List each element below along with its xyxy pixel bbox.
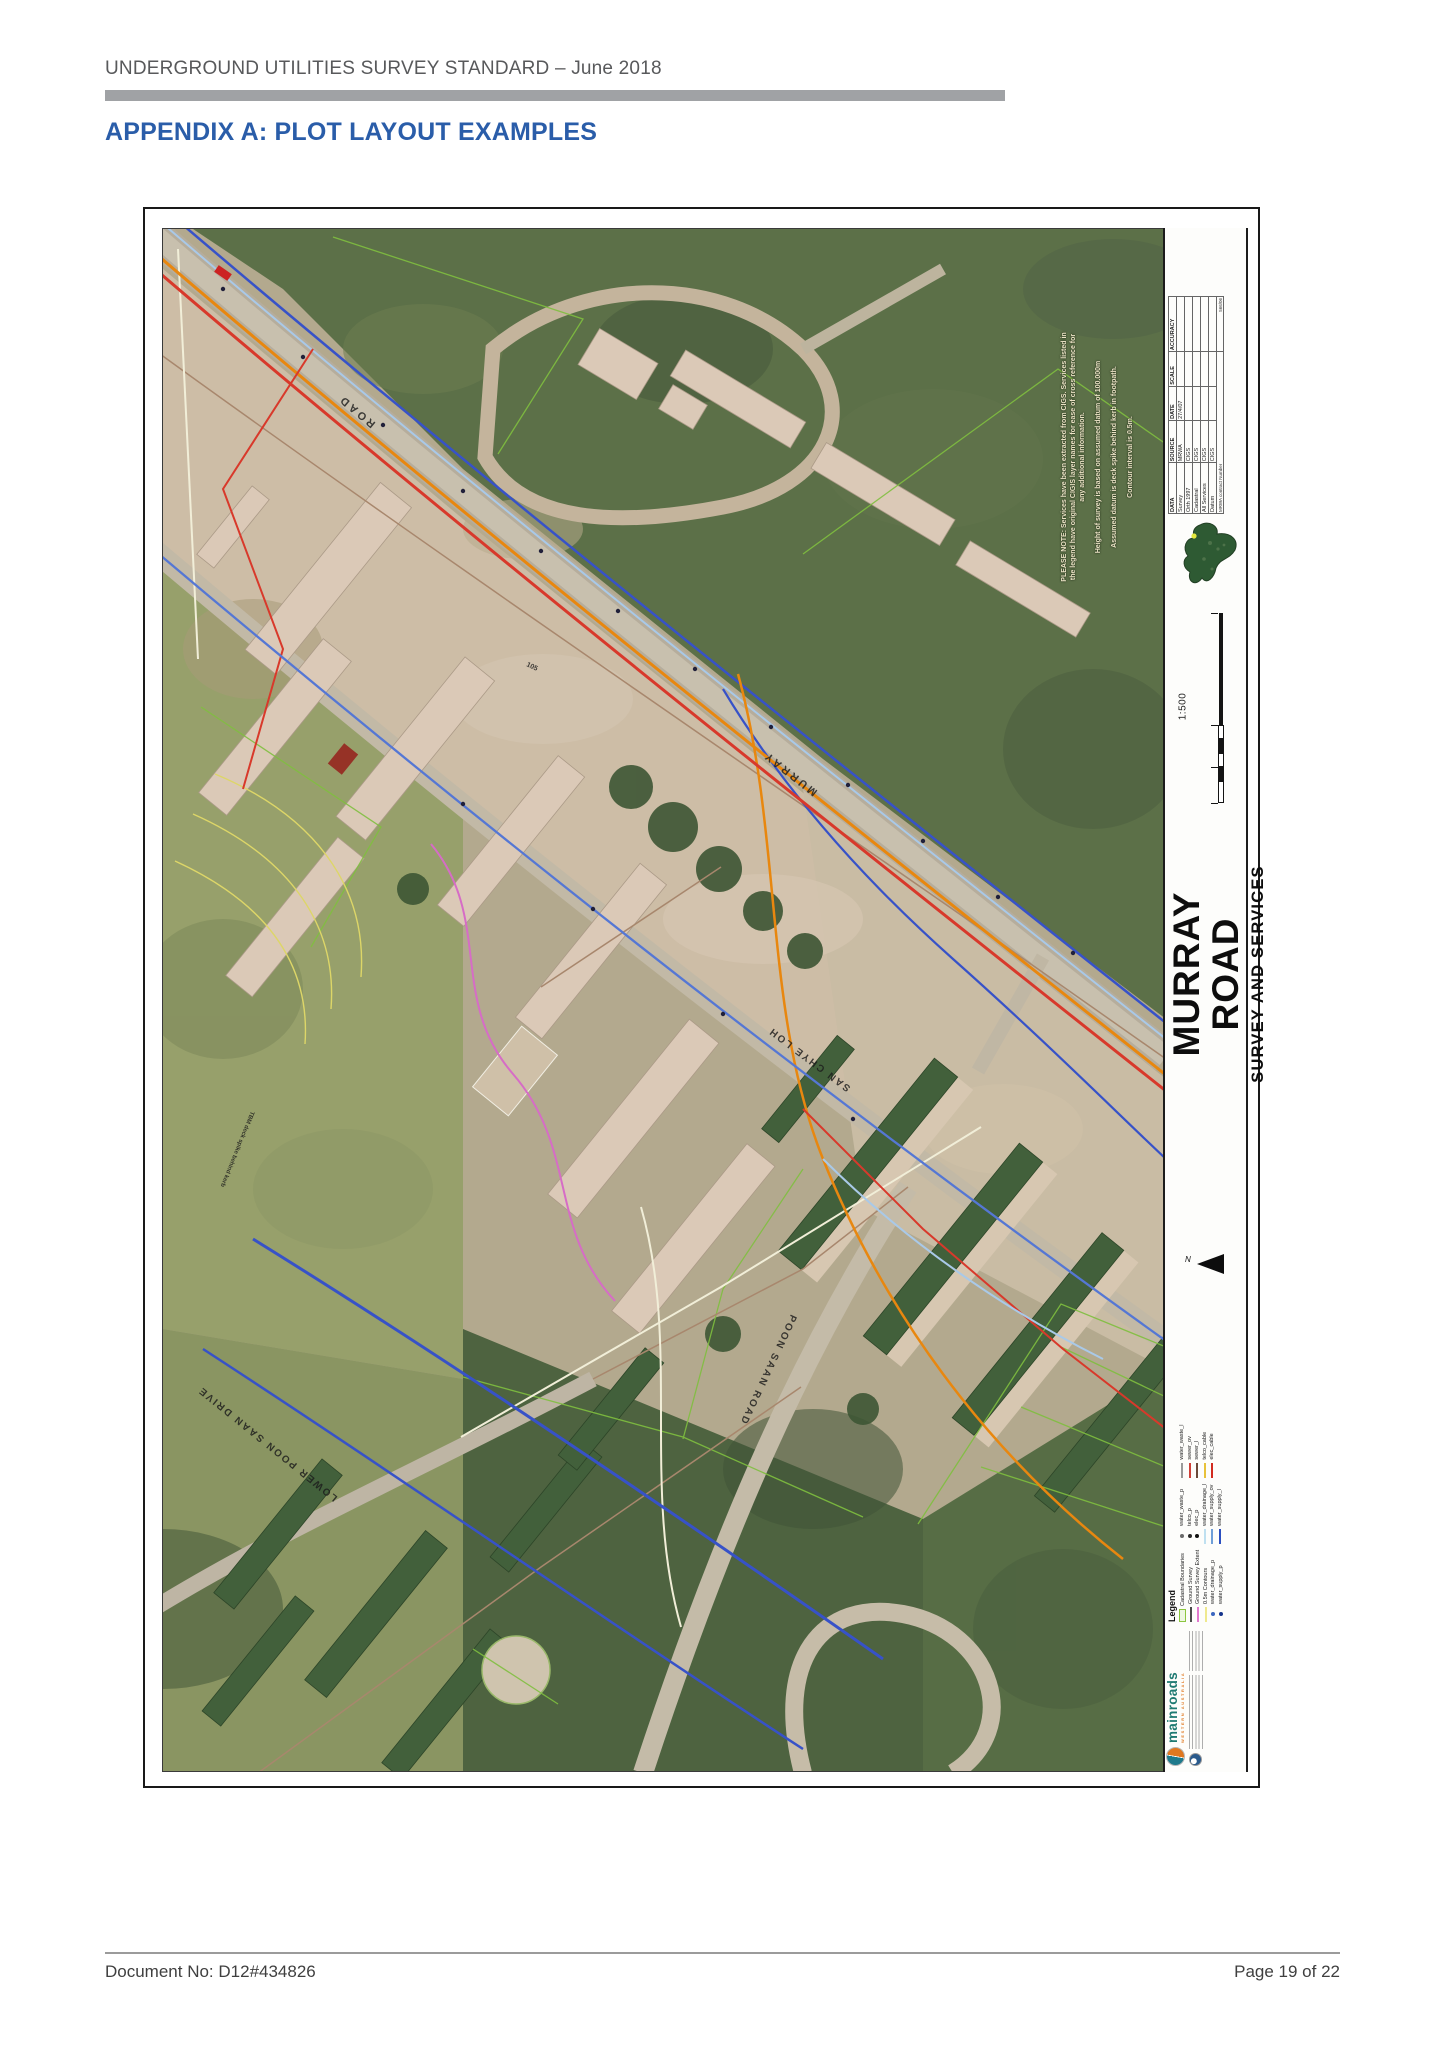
info-table-cell: Survey	[1177, 463, 1185, 514]
legend-title: Legend	[1167, 1360, 1177, 1622]
info-table-footnote-row: MRWA contract Number566/06	[1217, 297, 1224, 514]
legend-swatch-dot-icon	[1219, 1613, 1223, 1617]
info-table-header: SCALE	[1169, 352, 1177, 387]
info-table-cell	[1177, 297, 1185, 352]
legend-item-label: Cadastral Boundaries	[1180, 1553, 1186, 1606]
appendix-title: APPENDIX A: PLOT LAYOUT EXAMPLES	[105, 118, 597, 147]
info-table-cell	[1201, 352, 1209, 387]
document-header: UNDERGROUND UTILITIES SURVEY STANDARD – …	[105, 58, 662, 80]
legend-item: water_supply_ov	[1209, 1484, 1215, 1544]
legend-item-label: Ground Survey	[1188, 1567, 1194, 1604]
copyright-fine-print	[1189, 1675, 1204, 1749]
legend-swatch-dot-icon	[1188, 1534, 1192, 1538]
legend-item-label: Ground Survey Extent	[1195, 1550, 1201, 1604]
legend-swatch-dot-icon	[1180, 1534, 1184, 1538]
north-arrow: N	[1183, 1251, 1233, 1281]
legend-swatch-line-icon	[1219, 1529, 1221, 1544]
info-table-cell: Datum	[1209, 463, 1217, 514]
info-table-cell: CIGS	[1193, 420, 1201, 462]
sheet-title: MURRAY ROAD	[1168, 824, 1246, 1124]
legend-item-label: 0.5m Contours	[1203, 1568, 1209, 1604]
map-note: Height of survey is based on assumed dat…	[1094, 327, 1103, 587]
map-notes: PLEASE NOTE: Services have been extracte…	[1060, 327, 1165, 587]
legend-item: Ground Survey	[1188, 1550, 1194, 1622]
legend-swatch-dot-icon	[1195, 1534, 1199, 1538]
info-table-cell: MRWA	[1177, 420, 1185, 462]
info-table-footnote: MRWA contract Number	[1217, 352, 1224, 514]
info-table-header: SOURCE	[1169, 420, 1177, 462]
info-table-header: DATA	[1169, 463, 1177, 514]
legend-item-label: elec_p	[1194, 1510, 1200, 1526]
info-table-cell	[1185, 297, 1193, 352]
info-table-cell	[1185, 352, 1193, 387]
legend-item-label: water_waste_p	[1179, 1489, 1185, 1526]
legend-swatch-line-icon	[1197, 1607, 1199, 1622]
info-table-cell: All Services	[1201, 463, 1209, 514]
info-table: DATASOURCEDATESCALEACCURACY SurveyMRWA27…	[1168, 296, 1224, 514]
legend-item: water_supply_p	[1218, 1550, 1224, 1622]
document-page: { "page": { "header": "UNDERGROUND UTILI…	[0, 0, 1446, 2048]
legend: Legend Cadastral BoundariesGround Survey…	[1166, 1360, 1248, 1624]
legend-item: elec_cable	[1209, 1425, 1215, 1478]
legend-swatch-line-icon	[1189, 1463, 1191, 1478]
mainroads-subtitle: WESTERN AUSTRALIA	[1180, 1672, 1185, 1743]
info-table-cell	[1201, 297, 1209, 352]
legend-item: water_drainage_p	[1210, 1550, 1216, 1622]
legend-swatch-line-icon	[1204, 1529, 1206, 1544]
legend-item: 0.5m Contours	[1203, 1550, 1209, 1622]
info-table-header: DATE	[1169, 386, 1177, 420]
mainroads-logo-icon	[1166, 1747, 1185, 1766]
info-table-cell	[1185, 386, 1193, 420]
info-table-cell: Cadastral	[1193, 463, 1201, 514]
legend-item-label: telco_cable	[1202, 1432, 1208, 1460]
legend-item-label: telco_p	[1187, 1508, 1193, 1526]
document-number: Document No: D12#434826	[105, 1962, 316, 1982]
info-table-cell	[1201, 386, 1209, 420]
legend-swatch-line-icon	[1204, 1463, 1206, 1478]
legend-item-label: water_supply_ov	[1209, 1485, 1215, 1526]
north-arrow-icon	[1197, 1254, 1224, 1274]
legend-item: Cadastral Boundaries	[1179, 1550, 1186, 1622]
legend-column: Cadastral BoundariesGround SurveyGround …	[1179, 1550, 1224, 1622]
legend-swatch-line-icon	[1211, 1529, 1213, 1544]
legend-item-label: water_drainage_p	[1210, 1560, 1216, 1604]
info-table-block: DATASOURCEDATESCALEACCURACY SurveyMRWA27…	[1168, 296, 1244, 514]
info-table-cell	[1209, 386, 1217, 420]
mainroads-wordmark: mainroads	[1166, 1672, 1180, 1743]
legend-column: water_waste_lsewer_ovsewer_ltelco_cablee…	[1179, 1425, 1224, 1478]
footer-rule	[105, 1952, 1340, 1954]
legend-item-label: water_supply_l	[1217, 1489, 1223, 1526]
logos-block: mainroads WESTERN AUSTRALIA	[1166, 1630, 1248, 1766]
legend-swatch-line-icon	[1196, 1463, 1198, 1478]
scale-bar: 1:500	[1183, 605, 1235, 819]
scale-label: 1:500	[1177, 693, 1188, 721]
info-table-row: DatumCIGS	[1209, 297, 1217, 514]
legend-item-label: sewer_ov	[1187, 1436, 1193, 1460]
info-table-header: ACCURACY	[1169, 297, 1177, 352]
legend-swatch-line-icon	[1190, 1607, 1192, 1622]
locality-map-icon	[1180, 519, 1240, 595]
header-rule	[105, 90, 1005, 101]
legend-swatch-line-icon	[1181, 1463, 1183, 1478]
legend-item: Ground Survey Extent	[1195, 1550, 1201, 1622]
info-table-cell: 27/4/07	[1177, 386, 1185, 420]
legend-swatch-line-icon	[1205, 1607, 1207, 1622]
map-sheet: ROADMURRAYSAN CHYE LOHPOON SAAN ROADLOWE…	[143, 207, 1260, 1788]
legend-item: telco_p	[1187, 1484, 1193, 1544]
info-table-row: CadastralCIGS	[1193, 297, 1201, 514]
legend-item: elec_p	[1194, 1484, 1200, 1544]
map-note: Contour interval is 0.5m.	[1126, 327, 1135, 587]
government-logo-icon	[1189, 1753, 1202, 1766]
page-number: Page 19 of 22	[1234, 1962, 1340, 1982]
legend-item: water_supply_l	[1217, 1484, 1223, 1544]
legend-item: water_drainage_l	[1202, 1484, 1208, 1544]
info-table-cell	[1193, 352, 1201, 387]
copyright-fine-print	[1189, 1631, 1204, 1671]
legend-item: water_waste_l	[1179, 1425, 1185, 1478]
sheet-subtitle: SURVEY AND SERVICES	[1249, 824, 1268, 1124]
legend-item-label: water_waste_l	[1179, 1425, 1185, 1460]
map-note: PLEASE NOTE: Services have been extracte…	[1060, 327, 1087, 587]
legend-swatch-dot-icon	[1211, 1613, 1215, 1617]
sheet-title-block: MURRAY ROAD SURVEY AND SERVICES	[1168, 824, 1246, 1124]
legend-item-label: water_supply_p	[1218, 1565, 1224, 1604]
legend-swatch-box-icon	[1179, 1609, 1186, 1622]
legend-item-label: elec_cable	[1209, 1433, 1215, 1459]
legend-item: telco_cable	[1202, 1425, 1208, 1478]
info-table-footnote-value: 566/06	[1217, 297, 1224, 352]
info-table-cell	[1209, 352, 1217, 387]
north-label: N	[1185, 1255, 1191, 1264]
info-table-cell: CIGS	[1209, 420, 1217, 462]
map-note: Assumed datum is deck spike behind kerb …	[1110, 327, 1119, 587]
map-photo: ROADMURRAYSAN CHYE LOHPOON SAAN ROADLOWE…	[162, 228, 1165, 1772]
info-table-row: SurveyMRWA27/4/07	[1177, 297, 1185, 514]
legend-item-label: water_drainage_l	[1202, 1484, 1208, 1526]
info-table-cell	[1193, 386, 1201, 420]
info-table-cell: Orth 1997	[1185, 463, 1193, 514]
info-table-cell: CIGS	[1201, 420, 1209, 462]
info-table-cell	[1177, 352, 1185, 387]
map-svg: ROADMURRAYSAN CHYE LOHPOON SAAN ROADLOWE…	[163, 229, 1165, 1772]
info-table-cell: CIGS	[1185, 420, 1193, 462]
info-table-cell	[1209, 297, 1217, 352]
legend-column: water_waste_ptelco_pelec_pwater_drainage…	[1179, 1484, 1224, 1544]
legend-item: sewer_ov	[1187, 1425, 1193, 1478]
info-table-row: Orth 1997CIGS	[1185, 297, 1193, 514]
info-table-row: All ServicesCIGS	[1201, 297, 1209, 514]
legend-item: water_waste_p	[1179, 1484, 1185, 1544]
legend-item: sewer_l	[1194, 1425, 1200, 1478]
legend-swatch-line-icon	[1211, 1463, 1213, 1478]
legend-item-label: sewer_l	[1194, 1441, 1200, 1460]
info-table-cell	[1193, 297, 1201, 352]
